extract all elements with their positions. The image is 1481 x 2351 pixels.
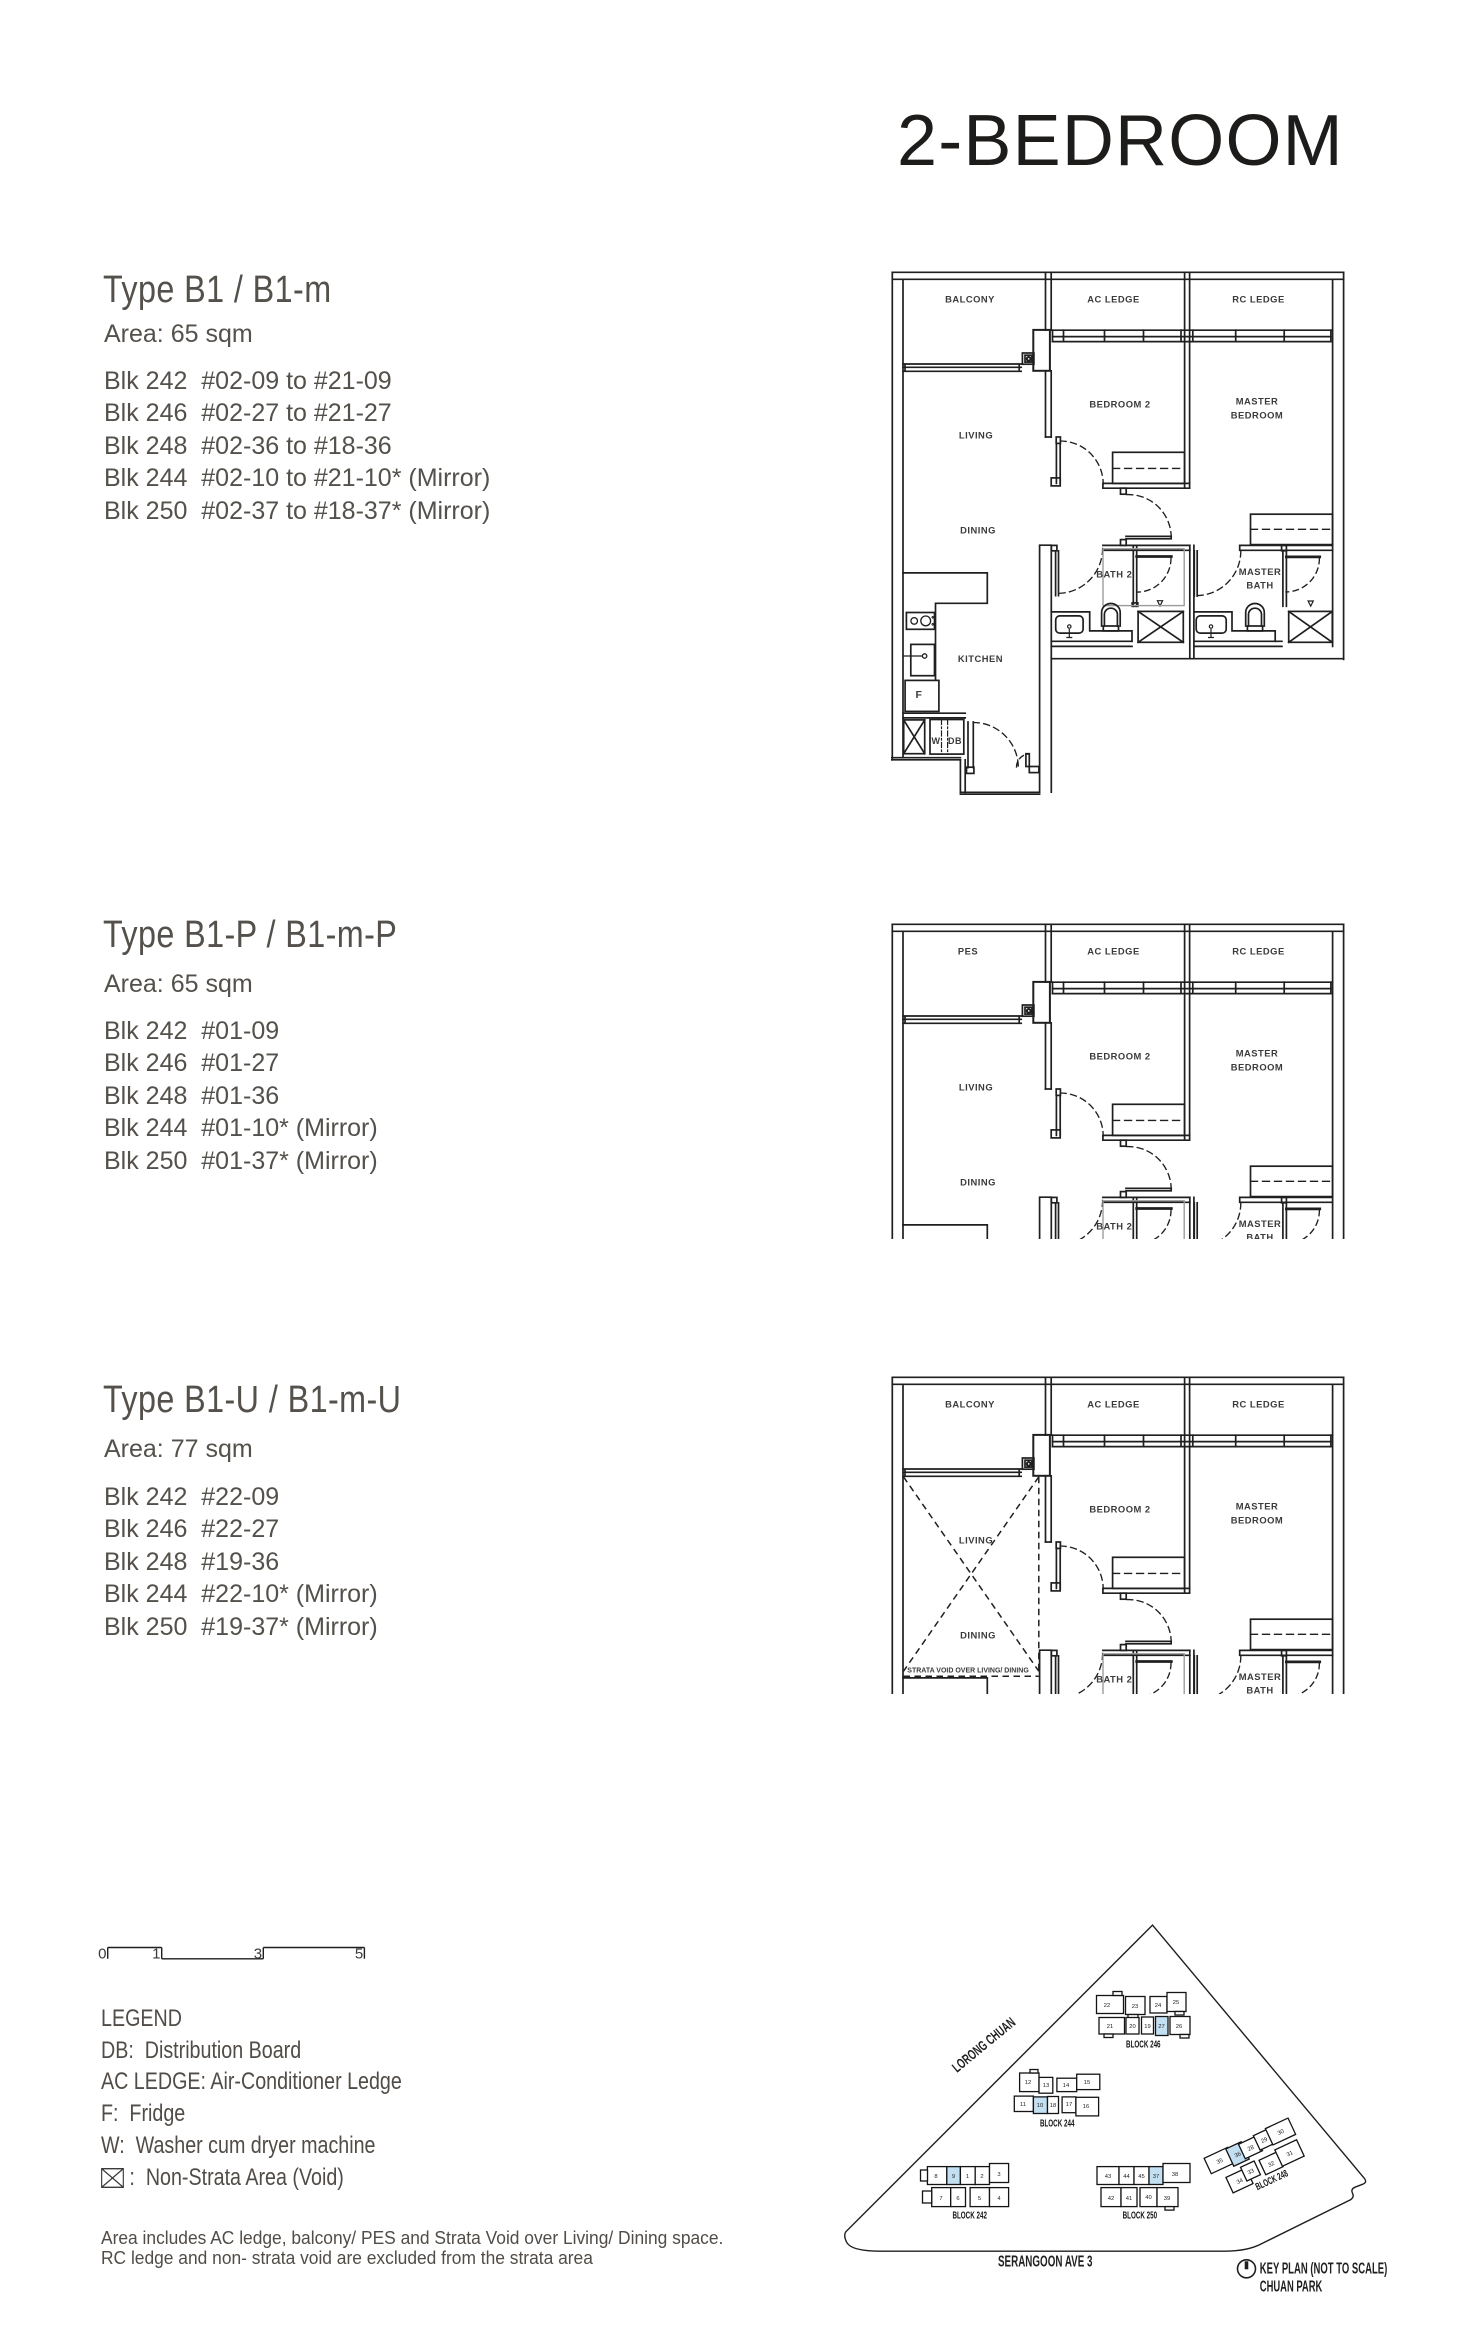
svg-text:2: 2 xyxy=(980,2174,983,2180)
svg-text:3: 3 xyxy=(254,1945,262,1962)
svg-text:9: 9 xyxy=(952,2174,955,2180)
svg-text:44: 44 xyxy=(1123,2174,1130,2180)
svg-text:15: 15 xyxy=(1084,2080,1090,2086)
svg-text:45: 45 xyxy=(1138,2174,1144,2180)
svg-text:42: 42 xyxy=(1108,2196,1114,2202)
svg-text:21: 21 xyxy=(1107,2024,1113,2030)
svg-text:1: 1 xyxy=(966,2174,969,2180)
svg-text:BLOCK 242: BLOCK 242 xyxy=(952,2211,987,2222)
svg-text:8: 8 xyxy=(934,2174,937,2180)
svg-text:10: 10 xyxy=(1037,2103,1043,2109)
svg-text:BALCONY: BALCONY xyxy=(945,1399,995,1410)
svg-text:5: 5 xyxy=(978,2196,981,2202)
svg-text:26: 26 xyxy=(1176,2024,1182,2030)
svg-text:0: 0 xyxy=(98,1945,106,1962)
svg-text:13: 13 xyxy=(1043,2083,1049,2089)
svg-text:11: 11 xyxy=(1020,2102,1026,2108)
svg-text:LORONG CHUAN: LORONG CHUAN xyxy=(949,2014,1019,2075)
svg-text:BALCONY: BALCONY xyxy=(945,294,995,305)
svg-text:BLOCK 244: BLOCK 244 xyxy=(1040,2119,1075,2130)
svg-text:19: 19 xyxy=(1144,2024,1150,2030)
svg-text:7: 7 xyxy=(939,2196,942,2202)
svg-text:12: 12 xyxy=(1025,2080,1031,2086)
svg-text:41: 41 xyxy=(1126,2196,1132,2202)
svg-text:CHUAN PARK: CHUAN PARK xyxy=(1260,2278,1323,2295)
svg-text:6: 6 xyxy=(956,2196,959,2202)
svg-text:20: 20 xyxy=(1129,2024,1135,2030)
svg-text:23: 23 xyxy=(1132,2004,1138,2010)
svg-text:27: 27 xyxy=(1158,2024,1164,2030)
svg-text:16: 16 xyxy=(1083,2104,1089,2110)
svg-text:PES: PES xyxy=(958,946,978,957)
svg-text:18: 18 xyxy=(1050,2103,1056,2109)
svg-text:22: 22 xyxy=(1104,2003,1110,2009)
svg-text:BLOCK 246: BLOCK 246 xyxy=(1126,2040,1161,2051)
svg-text:14: 14 xyxy=(1063,2083,1070,2089)
svg-text:39: 39 xyxy=(1164,2196,1170,2202)
svg-text:KEY PLAN (NOT TO SCALE): KEY PLAN (NOT TO SCALE) xyxy=(1260,2260,1388,2277)
svg-text:1: 1 xyxy=(152,1945,160,1962)
svg-text:43: 43 xyxy=(1105,2174,1111,2180)
svg-text:5: 5 xyxy=(355,1945,363,1962)
svg-text:3: 3 xyxy=(997,2172,1000,2178)
svg-text:17: 17 xyxy=(1066,2102,1072,2108)
svg-text:38: 38 xyxy=(1172,2172,1178,2178)
svg-text:25: 25 xyxy=(1173,2000,1179,2006)
svg-text:40: 40 xyxy=(1145,2195,1151,2201)
svg-text:BLOCK 250: BLOCK 250 xyxy=(1123,2211,1158,2222)
svg-text:37: 37 xyxy=(1153,2174,1159,2180)
svg-text:SERANGOON AVE 3: SERANGOON AVE 3 xyxy=(998,2254,1093,2271)
svg-text:24: 24 xyxy=(1155,2003,1162,2009)
svg-text:STRATA VOID OVER LIVING/ DININ: STRATA VOID OVER LIVING/ DINING xyxy=(907,1666,1029,1675)
